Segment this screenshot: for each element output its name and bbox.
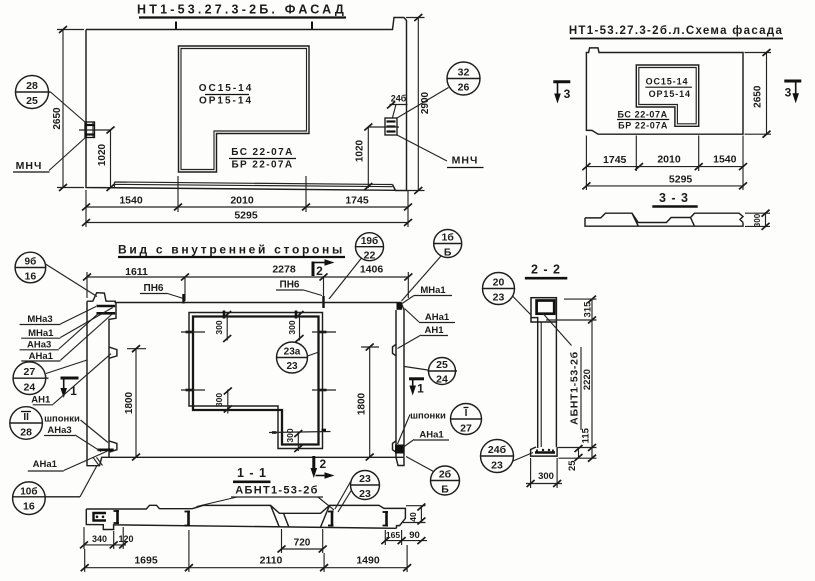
svg-text:120: 120 xyxy=(118,534,133,544)
svg-text:БР 22-07А: БР 22-07А xyxy=(618,121,668,131)
svg-text:23: 23 xyxy=(286,361,298,372)
svg-text:1745: 1745 xyxy=(603,154,627,166)
svg-text:300: 300 xyxy=(287,320,297,334)
svg-text:1800: 1800 xyxy=(357,392,368,415)
svg-text:БС 22-07А: БС 22-07А xyxy=(617,109,667,119)
svg-text:24б: 24б xyxy=(391,94,407,104)
svg-text:АН1: АН1 xyxy=(31,394,51,405)
svg-text:28: 28 xyxy=(20,426,32,438)
svg-text:24: 24 xyxy=(24,382,36,394)
svg-text:2010: 2010 xyxy=(230,195,254,207)
svg-text:Б: Б xyxy=(444,247,452,259)
svg-text:Б: Б xyxy=(441,484,449,496)
svg-text:90: 90 xyxy=(409,530,420,541)
svg-text:МНа1: МНа1 xyxy=(420,285,446,296)
svg-text:1611: 1611 xyxy=(125,266,148,278)
svg-text:27: 27 xyxy=(460,423,472,435)
svg-text:АНа1: АНа1 xyxy=(29,351,54,362)
svg-text:1: 1 xyxy=(417,382,424,396)
svg-text:22: 22 xyxy=(364,250,376,262)
svg-text:1800: 1800 xyxy=(124,391,135,414)
svg-text:26: 26 xyxy=(458,82,470,94)
svg-text:300: 300 xyxy=(753,213,762,227)
svg-text:МНЧ: МНЧ xyxy=(16,160,43,172)
svg-text:ПН6: ПН6 xyxy=(144,283,164,294)
svg-text:2 - 2: 2 - 2 xyxy=(531,263,561,277)
svg-text:10б: 10б xyxy=(20,486,37,498)
svg-text:165: 165 xyxy=(386,530,400,540)
svg-text:АН1: АН1 xyxy=(424,325,444,336)
svg-text:2650: 2650 xyxy=(52,107,63,130)
svg-text:ОС15-14: ОС15-14 xyxy=(199,83,254,94)
svg-text:1490: 1490 xyxy=(356,555,380,567)
svg-text:16: 16 xyxy=(25,271,37,283)
svg-text:23: 23 xyxy=(491,460,503,472)
svg-text:АБНТ1-53-2б: АБНТ1-53-2б xyxy=(569,351,581,425)
svg-text:МНа1: МНа1 xyxy=(28,328,54,339)
svg-text:115: 115 xyxy=(580,427,591,443)
svg-text:23: 23 xyxy=(359,488,371,500)
svg-text:300: 300 xyxy=(538,471,554,482)
svg-text:ОР15-14: ОР15-14 xyxy=(649,89,691,99)
svg-text:АНа3: АНа3 xyxy=(47,425,71,436)
svg-text:40: 40 xyxy=(408,512,418,522)
svg-text:НТ1-53.27.3-2Б. ФАСАД: НТ1-53.27.3-2Б. ФАСАД xyxy=(137,3,347,17)
svg-text:1540: 1540 xyxy=(713,153,737,165)
svg-text:1695: 1695 xyxy=(134,555,158,567)
svg-text:1020: 1020 xyxy=(355,139,366,162)
svg-text:ПН6: ПН6 xyxy=(280,280,300,291)
svg-text:2110: 2110 xyxy=(260,555,283,567)
svg-text:20: 20 xyxy=(493,277,505,289)
svg-text:3 - 3: 3 - 3 xyxy=(659,191,689,205)
svg-text:28: 28 xyxy=(26,80,38,92)
svg-text:23: 23 xyxy=(359,473,371,485)
svg-text:2650: 2650 xyxy=(753,85,764,108)
svg-text:23а: 23а xyxy=(284,347,301,358)
svg-text:1020: 1020 xyxy=(97,143,108,166)
svg-text:25: 25 xyxy=(436,359,448,371)
svg-text:ОР15-14: ОР15-14 xyxy=(199,96,253,107)
svg-text:27: 27 xyxy=(24,366,36,378)
svg-text:АНа1: АНа1 xyxy=(425,312,450,323)
svg-text:5295: 5295 xyxy=(234,210,258,222)
svg-text:II: II xyxy=(23,412,29,423)
svg-text:НТ1-53.27.3-2б.л.Схема фасада: НТ1-53.27.3-2б.л.Схема фасада xyxy=(569,25,783,37)
svg-text:25: 25 xyxy=(567,460,578,471)
svg-text:1406: 1406 xyxy=(360,264,384,276)
svg-text:2900: 2900 xyxy=(420,91,431,114)
svg-text:25: 25 xyxy=(26,95,38,107)
svg-text:1 - 1: 1 - 1 xyxy=(237,466,267,480)
svg-text:340: 340 xyxy=(92,534,107,544)
svg-text:2: 2 xyxy=(319,457,326,471)
svg-text:24б: 24б xyxy=(488,444,507,456)
svg-text:2010: 2010 xyxy=(657,153,681,165)
svg-text:2: 2 xyxy=(316,264,323,278)
svg-text:шпонки: шпонки xyxy=(44,414,80,425)
svg-text:24: 24 xyxy=(436,374,448,386)
svg-text:5295: 5295 xyxy=(669,174,693,186)
svg-text:16: 16 xyxy=(23,501,35,513)
svg-text:300: 300 xyxy=(214,320,224,334)
svg-text:23: 23 xyxy=(493,292,505,304)
svg-text:3: 3 xyxy=(564,87,571,101)
svg-text:32: 32 xyxy=(458,67,470,79)
svg-text:Вид с внутренней стороны: Вид с внутренней стороны xyxy=(118,243,345,257)
svg-text:2278: 2278 xyxy=(272,264,296,276)
svg-text:БС 22-07А: БС 22-07А xyxy=(231,147,293,158)
svg-text:МНЧ: МНЧ xyxy=(452,155,479,167)
svg-text:300: 300 xyxy=(214,393,224,407)
svg-text:315: 315 xyxy=(582,301,593,318)
svg-text:2б: 2б xyxy=(439,469,452,481)
svg-text:3: 3 xyxy=(785,86,792,100)
svg-text:300: 300 xyxy=(285,428,295,442)
svg-text:ОС15-14: ОС15-14 xyxy=(646,77,689,87)
svg-text:АНа3: АНа3 xyxy=(27,340,51,351)
svg-text:2220: 2220 xyxy=(582,369,593,390)
svg-text:I: I xyxy=(465,408,468,419)
svg-text:1745: 1745 xyxy=(345,195,369,207)
svg-text:АНа1: АНа1 xyxy=(419,430,444,441)
svg-text:МНа3: МНа3 xyxy=(27,314,52,325)
svg-text:1540: 1540 xyxy=(119,195,143,207)
svg-text:АБНТ1-53-2б: АБНТ1-53-2б xyxy=(235,485,318,497)
svg-text:1б: 1б xyxy=(442,232,455,244)
svg-text:БР 22-07А: БР 22-07А xyxy=(231,160,293,171)
svg-text:9б: 9б xyxy=(25,256,37,268)
svg-text:АНа1: АНа1 xyxy=(33,459,58,470)
svg-text:720: 720 xyxy=(294,538,311,549)
svg-text:шпонки: шпонки xyxy=(410,411,446,422)
svg-text:19б: 19б xyxy=(361,235,378,247)
